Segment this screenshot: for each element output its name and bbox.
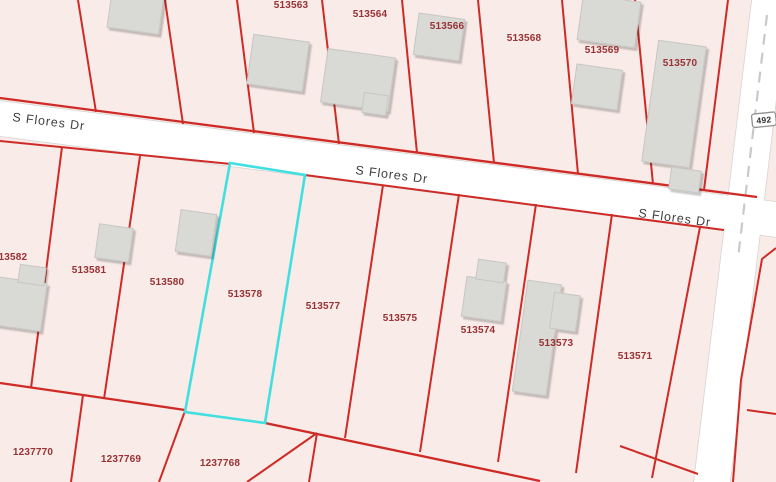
parcel-label-highlighted[interactable]: 513578 bbox=[228, 289, 263, 300]
parcel-label[interactable]: 513566 bbox=[430, 21, 465, 32]
parcel-map-canvas[interactable]: 513563 513564 513566 513568 513569 51357… bbox=[0, 0, 776, 482]
route-shield-text: 492 bbox=[756, 114, 772, 126]
parcel-label[interactable]: 513574 bbox=[461, 325, 496, 336]
parcel-map-viewport: 513563 513564 513566 513568 513569 51357… bbox=[0, 0, 776, 482]
parcel-label[interactable]: 513563 bbox=[274, 0, 309, 11]
building-footprint bbox=[18, 264, 46, 285]
parcel-label[interactable]: 513580 bbox=[150, 277, 185, 288]
building-footprint bbox=[461, 276, 506, 321]
parcel-label[interactable]: 513577 bbox=[306, 301, 341, 312]
parcel-label[interactable]: 513564 bbox=[353, 9, 388, 20]
parcel-label[interactable]: 1237769 bbox=[101, 454, 142, 465]
parcel-label[interactable]: 513582 bbox=[0, 252, 28, 263]
parcel-label[interactable]: 1237768 bbox=[200, 458, 241, 469]
parcel-label[interactable]: 513571 bbox=[618, 351, 653, 362]
building-footprint bbox=[476, 259, 507, 283]
building-footprint bbox=[577, 0, 641, 48]
parcel-label[interactable]: 1237770 bbox=[13, 447, 54, 458]
parcel-label[interactable]: 513581 bbox=[72, 265, 107, 276]
building-footprint bbox=[95, 224, 133, 262]
parcel-label[interactable]: 513568 bbox=[507, 33, 542, 44]
building-footprint bbox=[669, 167, 702, 193]
parcel-label[interactable]: 513570 bbox=[663, 58, 698, 69]
parcel-label[interactable]: 513573 bbox=[539, 338, 574, 349]
parcel-label[interactable]: 513569 bbox=[585, 45, 620, 56]
building-footprint bbox=[571, 64, 622, 110]
route-shield: 492 bbox=[751, 112, 776, 128]
building-footprint bbox=[247, 34, 309, 91]
building-footprint bbox=[175, 210, 216, 257]
building-footprint bbox=[550, 292, 581, 331]
building-footprint bbox=[362, 92, 389, 115]
parcel-label[interactable]: 513575 bbox=[383, 313, 418, 324]
